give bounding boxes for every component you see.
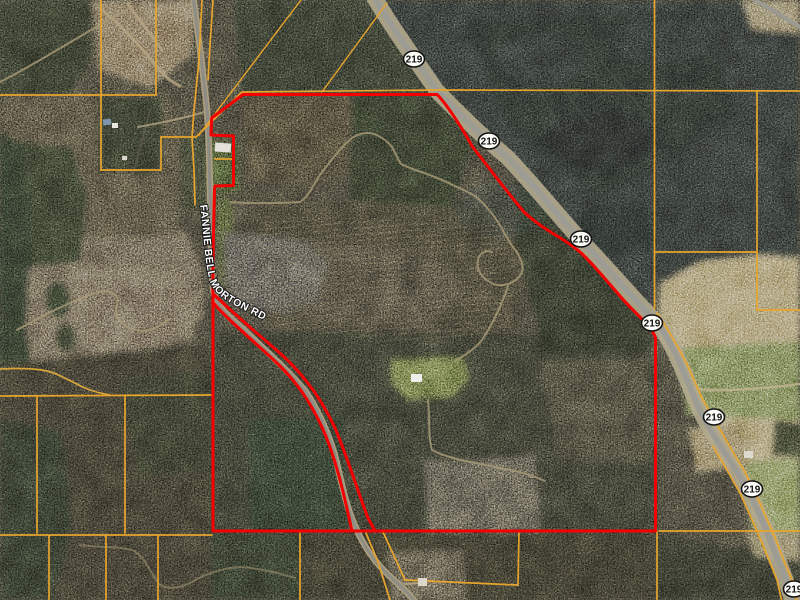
svg-text:219: 219 <box>786 585 800 596</box>
svg-text:219: 219 <box>481 137 498 148</box>
svg-text:FANNIE BELL MORTON RD: FANNIE BELL MORTON RD <box>197 204 268 323</box>
svg-text:219: 219 <box>406 55 423 66</box>
svg-text:219: 219 <box>573 235 590 246</box>
svg-text:219: 219 <box>744 485 761 496</box>
svg-text:219: 219 <box>644 319 661 330</box>
svg-text:219: 219 <box>706 413 723 424</box>
